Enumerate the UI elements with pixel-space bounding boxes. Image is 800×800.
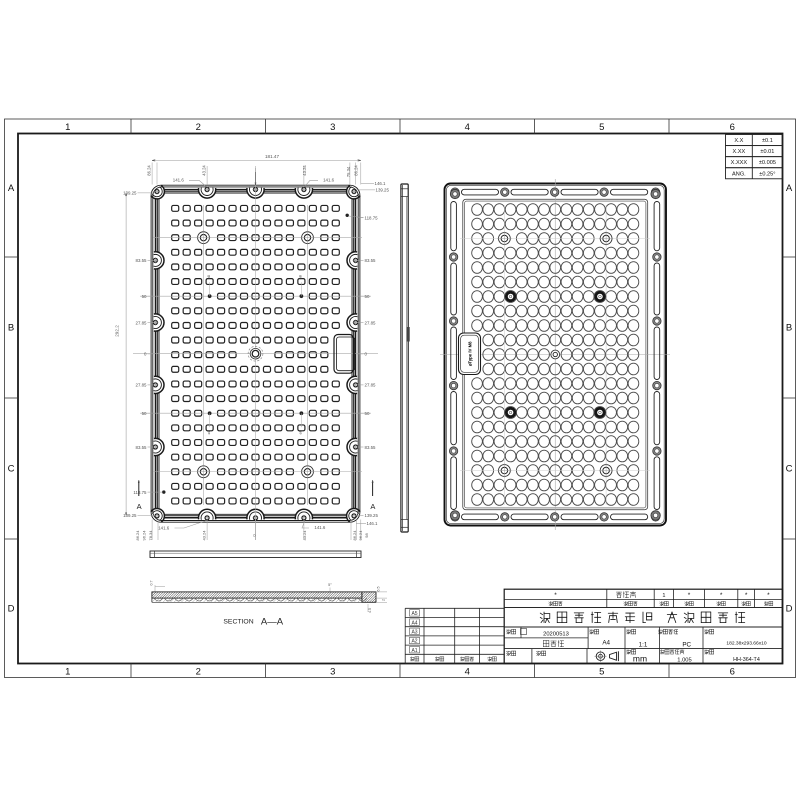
svg-text:141.6: 141.6 xyxy=(323,178,335,183)
svg-text:20200513: 20200513 xyxy=(543,631,569,637)
svg-text:43.24: 43.24 xyxy=(202,530,207,541)
svg-text:139.25: 139.25 xyxy=(123,191,137,196)
svg-text:83.55: 83.55 xyxy=(136,258,148,263)
svg-text:±0.01: ±0.01 xyxy=(760,149,774,155)
svg-text:A5: A5 xyxy=(411,611,417,617)
svg-text:75.34: 75.34 xyxy=(346,166,351,177)
svg-text:139.25: 139.25 xyxy=(376,187,390,192)
svg-text:B: B xyxy=(786,323,792,334)
svg-text:C: C xyxy=(786,464,793,475)
svg-text:1.005: 1.005 xyxy=(677,658,692,664)
svg-text:50: 50 xyxy=(365,411,370,416)
svg-text:139.25: 139.25 xyxy=(365,513,379,518)
svg-text:139.25: 139.25 xyxy=(123,513,137,518)
svg-text:C: C xyxy=(8,464,15,475)
svg-text:A—A: A—A xyxy=(261,617,284,628)
svg-text:A1: A1 xyxy=(411,648,417,654)
svg-text:4: 4 xyxy=(465,667,470,678)
svg-text:43.24: 43.24 xyxy=(302,530,307,541)
svg-text:X.XX: X.XX xyxy=(733,149,746,155)
svg-text:1: 1 xyxy=(662,593,665,599)
svg-text:3: 3 xyxy=(330,667,335,678)
svg-text:D: D xyxy=(8,603,15,614)
svg-text:⌀8: ⌀8 xyxy=(207,275,211,279)
svg-text:43.24: 43.24 xyxy=(202,165,207,176)
svg-text:98: 98 xyxy=(364,533,369,538)
svg-text:4: 4 xyxy=(465,122,470,133)
svg-text:43.24: 43.24 xyxy=(302,165,307,176)
svg-text:96.24: 96.24 xyxy=(142,530,147,541)
svg-text:A4: A4 xyxy=(602,640,610,647)
svg-text:27.85: 27.85 xyxy=(365,320,377,325)
svg-text:A: A xyxy=(8,183,15,194)
svg-text:5: 5 xyxy=(599,122,604,133)
svg-text:86.24: 86.24 xyxy=(354,165,359,176)
svg-text:86.24: 86.24 xyxy=(146,165,151,176)
svg-text:±0.1: ±0.1 xyxy=(762,138,773,144)
svg-text:⌀8: ⌀8 xyxy=(299,430,303,434)
svg-text:2: 2 xyxy=(382,599,386,601)
svg-text:27.85: 27.85 xyxy=(136,383,148,388)
svg-text:⌀8: ⌀8 xyxy=(207,430,211,434)
svg-text:1: 1 xyxy=(65,122,70,133)
svg-text:146.1: 146.1 xyxy=(375,181,387,186)
svg-text:A3: A3 xyxy=(411,630,417,636)
svg-text:181.47: 181.47 xyxy=(265,154,279,159)
svg-text:A: A xyxy=(786,183,793,194)
svg-text:182.38x293.66x10: 182.38x293.66x10 xyxy=(726,641,767,647)
svg-text:A4: A4 xyxy=(411,620,417,626)
svg-text:X.XXX: X.XXX xyxy=(731,160,748,166)
svg-text:6: 6 xyxy=(730,122,735,133)
svg-text:SECTION: SECTION xyxy=(223,619,253,626)
svg-text:118.75: 118.75 xyxy=(365,215,379,220)
svg-text:2: 2 xyxy=(196,667,201,678)
svg-text:5: 5 xyxy=(599,667,604,678)
svg-text:4.5: 4.5 xyxy=(368,608,372,613)
svg-text:PC: PC xyxy=(682,642,691,649)
svg-text:118.75: 118.75 xyxy=(133,490,147,495)
svg-text:86.24: 86.24 xyxy=(135,530,140,541)
svg-text:±0.25°: ±0.25° xyxy=(759,171,775,177)
svg-text:⌀8: ⌀8 xyxy=(299,275,303,279)
svg-text:A: A xyxy=(137,502,142,511)
svg-text:A2: A2 xyxy=(411,639,417,645)
svg-text:86.24: 86.24 xyxy=(352,530,357,541)
svg-text:27.85: 27.85 xyxy=(365,383,377,388)
svg-text:±0.005: ±0.005 xyxy=(759,160,776,166)
svg-text:D: D xyxy=(786,603,793,614)
svg-text:HH-364-T4: HH-364-T4 xyxy=(733,657,760,663)
svg-text:292.2: 292.2 xyxy=(115,325,120,337)
svg-text:mm: mm xyxy=(633,653,647,663)
svg-text:141.6: 141.6 xyxy=(158,525,170,530)
svg-text:27.85: 27.85 xyxy=(136,320,148,325)
svg-text:83.55: 83.55 xyxy=(136,445,148,450)
svg-text:5°: 5° xyxy=(328,583,332,587)
svg-text:ANG.: ANG. xyxy=(732,171,746,177)
svg-text:1: 1 xyxy=(65,667,70,678)
svg-text:6.5: 6.5 xyxy=(377,587,381,592)
svg-text:141.6: 141.6 xyxy=(173,178,185,183)
svg-text:50: 50 xyxy=(365,294,370,299)
svg-text:96.24: 96.24 xyxy=(358,530,363,541)
svg-text:⌀Type IV M8: ⌀Type IV M8 xyxy=(467,341,472,366)
svg-text:83.55: 83.55 xyxy=(365,445,377,450)
svg-text:50: 50 xyxy=(142,294,147,299)
svg-text:83.55: 83.55 xyxy=(365,258,377,263)
svg-text:141.6: 141.6 xyxy=(314,525,326,530)
svg-text:50: 50 xyxy=(142,411,147,416)
svg-text:B: B xyxy=(8,323,14,334)
svg-text:A: A xyxy=(370,502,375,511)
svg-text:X.X: X.X xyxy=(734,138,743,144)
svg-text:6: 6 xyxy=(730,667,735,678)
svg-text:78.34: 78.34 xyxy=(148,530,153,541)
svg-text:0.7: 0.7 xyxy=(150,581,154,586)
svg-text:146.1: 146.1 xyxy=(367,521,379,526)
svg-text:1:1: 1:1 xyxy=(639,642,648,649)
svg-text:3: 3 xyxy=(330,122,335,133)
svg-text:2: 2 xyxy=(196,122,201,133)
